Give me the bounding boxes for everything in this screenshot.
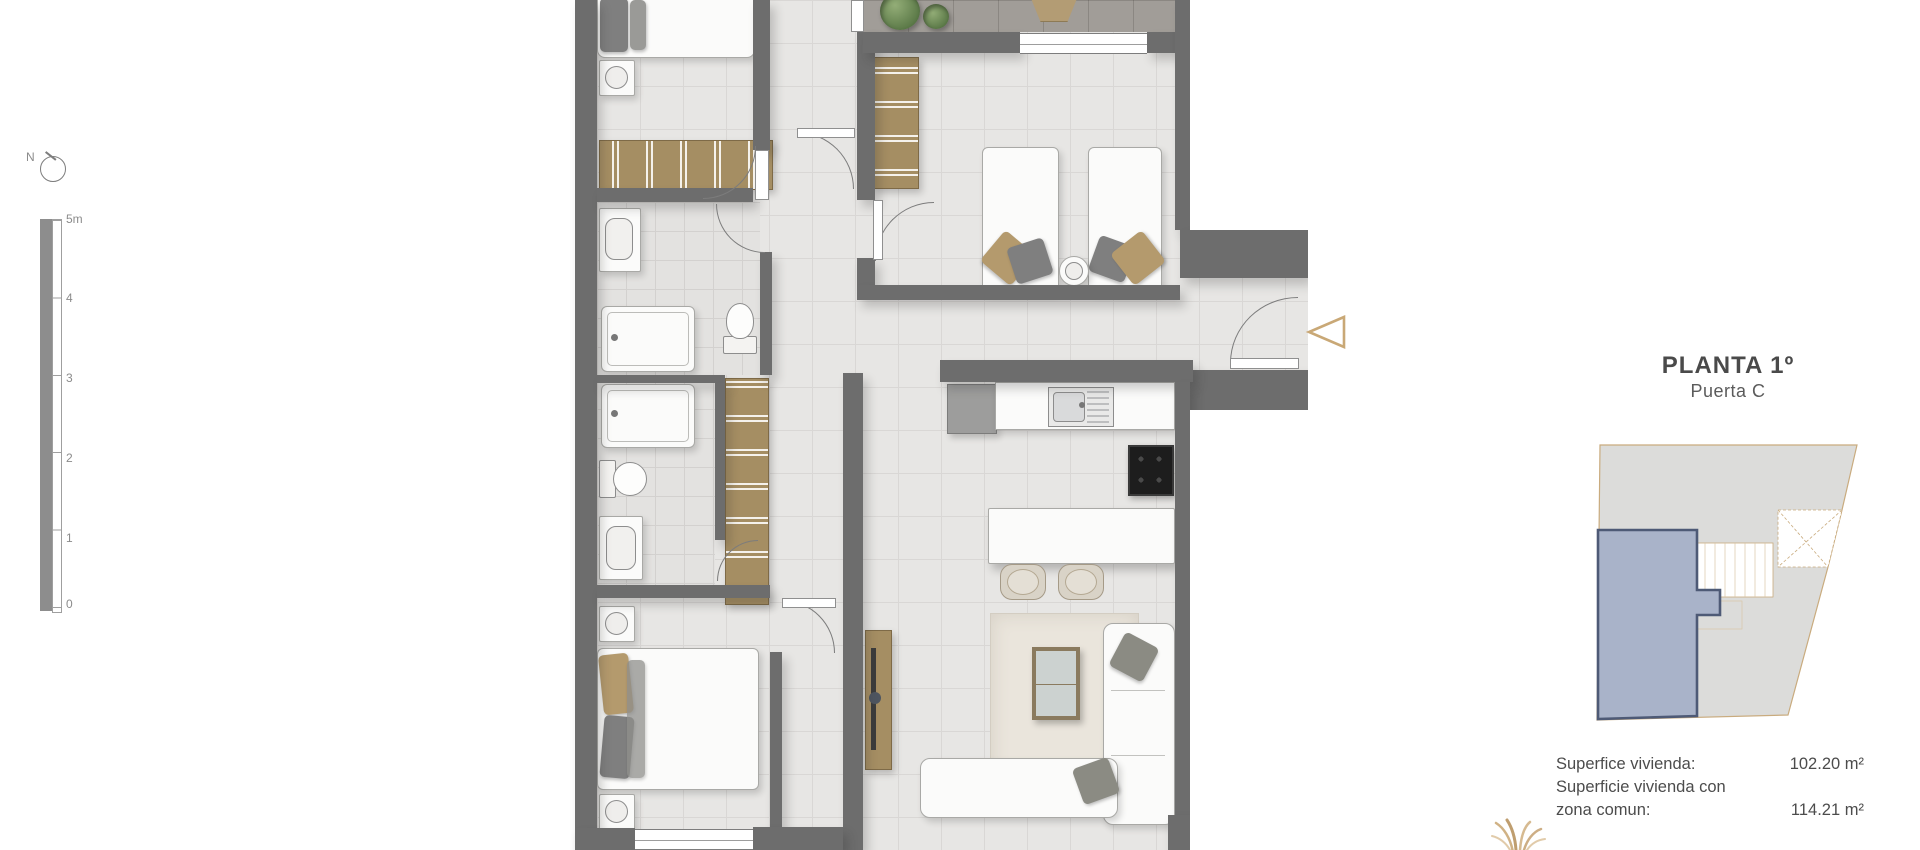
bed-1-pillow (630, 0, 646, 50)
plan-title: PLANTA 1º (1593, 352, 1863, 380)
north-compass: N (26, 148, 76, 192)
bar-stool (1058, 564, 1104, 600)
wall-bath-divider (597, 375, 725, 383)
wall-bathroom2-east (715, 383, 725, 540)
wall-south-center (753, 827, 843, 850)
scale-bar: 5m 4 3 2 1 0 (40, 219, 100, 611)
plant-icon (923, 4, 949, 29)
exterior-mask (1190, 410, 1350, 850)
window-master-bedroom (635, 829, 753, 850)
floor-plan-sheet: N 5m 4 3 2 1 0 (0, 0, 1920, 850)
fridge (947, 384, 997, 434)
scale-tick-4: 4 (66, 291, 73, 305)
sofa-seam (1111, 690, 1165, 691)
wall-bedroom1-east (753, 0, 770, 150)
decor-plant-icon (1450, 818, 1590, 850)
plan-subtitle: Puerta C (1593, 381, 1863, 402)
scale-tick-0: 0 (66, 597, 73, 611)
wall-bedroom2-west-lower (857, 258, 875, 285)
scale-tick-1: 1 (66, 531, 73, 545)
scale-tick-2: 2 (66, 451, 73, 465)
bed-1-pillow (600, 0, 628, 52)
bedroom2-door-leaf (873, 200, 883, 260)
scale-bar-dark (40, 219, 52, 611)
wall-entry-north (1180, 230, 1308, 278)
cooktop (1128, 445, 1174, 496)
wall-bedroom2-south (857, 285, 1180, 300)
surface-row: zona comun: 114.21 m² (1556, 799, 1864, 822)
window-bedroom-2 (1020, 33, 1147, 54)
lamp-icon (1065, 262, 1083, 280)
wardrobe-bedroom-2 (872, 57, 919, 189)
coffee-table-divider (1036, 684, 1076, 685)
entrance-arrow-icon (1305, 314, 1347, 350)
key-plan (1593, 443, 1865, 733)
sofa-seam (1111, 755, 1165, 756)
wall-terrace-south-west (863, 32, 1020, 53)
wall-south-west (575, 828, 635, 850)
wall-bathroom1-east (760, 252, 772, 375)
sink-drainer (1087, 391, 1109, 423)
kitchen-sink (1048, 387, 1114, 427)
surface-value: 114.21 m² (1791, 799, 1864, 822)
lamp-icon (605, 800, 628, 823)
toilet-1-bowl (726, 303, 754, 339)
wall-east-upper (1175, 0, 1190, 230)
wall-bedroom2-west-upper (857, 32, 875, 200)
wall-east-lower (1175, 382, 1190, 815)
wall-kitchen-north (940, 360, 1193, 382)
surface-row: Superficie vivienda con (1556, 776, 1864, 799)
surface-label: Superficie vivienda con (1556, 776, 1726, 799)
wall-entry-south (1180, 370, 1310, 410)
wall-master-east (770, 652, 782, 828)
tv-knob (869, 692, 881, 704)
hall-door-leaf (797, 128, 855, 138)
entrance-door-leaf (1230, 358, 1299, 369)
bed-master-runner (627, 660, 645, 778)
bar-stool (1000, 564, 1046, 600)
sink-basin-2 (606, 526, 636, 570)
wall-corridor-east (843, 373, 863, 850)
scale-tick-3: 3 (66, 371, 73, 385)
scale-tick-5m: 5m (66, 212, 83, 226)
surface-row: Superfice vivienda: 102.20 m² (1556, 753, 1864, 776)
lamp-icon (605, 612, 628, 635)
bedroom1-door-leaf (755, 150, 769, 200)
terrace-door-leaf (851, 0, 864, 32)
wall-west (575, 0, 597, 850)
master-door-leaf (782, 598, 836, 608)
lamp-icon (605, 66, 628, 89)
scale-bar-light (52, 219, 62, 613)
surface-value: 102.20 m² (1790, 753, 1864, 776)
surface-label: Superfice vivienda: (1556, 753, 1695, 776)
bathtub-2-inner (607, 390, 689, 442)
surface-area-block: Superfice vivienda: 102.20 m² Superficie… (1556, 753, 1864, 822)
bathtub-1-inner (607, 312, 689, 366)
north-label: N (26, 150, 35, 164)
exterior-mask (1190, 0, 1350, 230)
coffee-table (1032, 647, 1080, 720)
apartment-floor-plan (575, 0, 1345, 850)
kitchen-island (988, 508, 1175, 564)
faucet-icon (611, 334, 618, 341)
sink-basin (605, 218, 633, 260)
toilet-2-bowl (613, 462, 647, 496)
wall-master-north (597, 585, 770, 598)
faucet-icon (611, 410, 618, 417)
faucet-icon (1079, 402, 1085, 408)
compass-circle-icon (40, 156, 66, 182)
